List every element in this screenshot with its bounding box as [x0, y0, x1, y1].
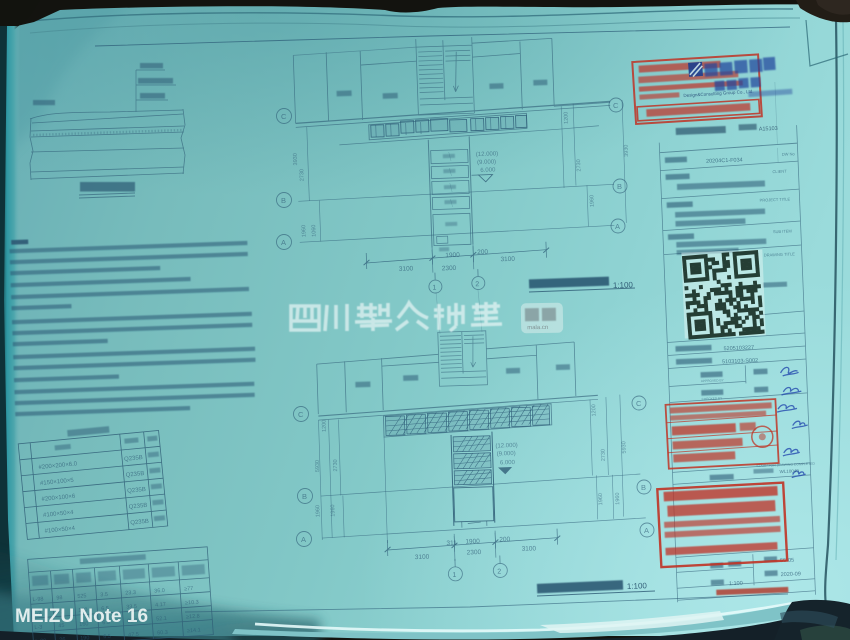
svg-text:B: B [302, 492, 307, 501]
svg-text:36.0: 36.0 [154, 588, 165, 595]
svg-text:C: C [281, 112, 287, 121]
svg-text:60.3: 60.3 [157, 630, 168, 637]
svg-text:(12.000): (12.000) [476, 151, 499, 158]
svg-text:5930: 5930 [621, 441, 627, 453]
svg-text:L-98: L-98 [32, 596, 43, 603]
svg-text:A: A [644, 526, 649, 535]
svg-text:(12.000): (12.000) [495, 443, 518, 450]
svg-text:1960: 1960 [615, 492, 621, 504]
svg-text:DW No: DW No [782, 151, 796, 157]
svg-text:1900: 1900 [465, 538, 480, 545]
svg-text:3100: 3100 [399, 265, 414, 273]
svg-text:1:100: 1:100 [627, 581, 648, 591]
svg-text:200: 200 [499, 536, 510, 543]
svg-text:2300: 2300 [442, 265, 457, 273]
svg-text:2: 2 [497, 568, 501, 575]
svg-text:3930: 3930 [293, 153, 299, 165]
svg-text:525: 525 [77, 593, 87, 600]
svg-text:SUB ITEM: SUB ITEM [773, 228, 792, 234]
svg-text:WL10049: WL10049 [779, 468, 799, 474]
svg-text:1960: 1960 [598, 493, 604, 505]
svg-text:1960: 1960 [315, 505, 321, 517]
svg-text:4.17: 4.17 [155, 602, 166, 609]
svg-text:52.1: 52.1 [156, 616, 167, 623]
svg-text:200: 200 [477, 249, 488, 256]
svg-text:2730: 2730 [299, 169, 305, 181]
svg-text:1900: 1900 [445, 252, 460, 260]
svg-text:A: A [281, 238, 286, 247]
svg-text:≥10.3: ≥10.3 [185, 600, 199, 607]
svg-text:98: 98 [56, 595, 63, 601]
svg-text:3100: 3100 [500, 256, 515, 264]
svg-text:1960: 1960 [301, 225, 307, 237]
svg-text:3.5: 3.5 [100, 592, 108, 599]
svg-text:A: A [301, 535, 306, 544]
svg-text:≥12.8: ≥12.8 [186, 614, 200, 621]
svg-text:(9.000): (9.000) [497, 451, 516, 458]
svg-text:B: B [281, 196, 286, 205]
svg-text:2730: 2730 [333, 459, 339, 471]
svg-text:5205103227: 5205103227 [723, 345, 754, 352]
svg-text:B: B [641, 483, 646, 492]
svg-text:47.5: 47.5 [128, 632, 139, 639]
svg-text:C: C [613, 101, 619, 110]
svg-text:311: 311 [446, 540, 457, 547]
svg-text:(9.000): (9.000) [477, 159, 496, 166]
svg-text:2730: 2730 [601, 449, 607, 461]
svg-text:23.3: 23.3 [125, 590, 136, 597]
svg-text:MEIZU Note 16: MEIZU Note 16 [15, 606, 148, 627]
svg-text:1:100: 1:100 [729, 581, 743, 588]
svg-text:≥77: ≥77 [184, 586, 194, 593]
svg-text:A: A [615, 222, 620, 231]
svg-text:6.000: 6.000 [500, 460, 516, 466]
svg-text:1960: 1960 [589, 195, 595, 207]
svg-text:6.5: 6.5 [103, 634, 111, 640]
svg-text:2: 2 [475, 281, 479, 288]
svg-text:1200: 1200 [563, 112, 569, 124]
svg-text:CLIENT: CLIENT [772, 169, 787, 175]
svg-text:1200: 1200 [321, 420, 327, 432]
svg-text:C: C [298, 410, 304, 419]
svg-text:B: B [617, 182, 622, 191]
svg-text:2730: 2730 [576, 159, 582, 171]
svg-text:6.000: 6.000 [480, 167, 496, 174]
svg-text:1060: 1060 [311, 224, 317, 236]
svg-text:≥14.1: ≥14.1 [187, 627, 201, 634]
svg-text:mala.cn: mala.cn [527, 325, 548, 331]
svg-text:3930: 3930 [624, 144, 630, 156]
svg-text:C: C [636, 399, 642, 408]
svg-text:3100: 3100 [415, 554, 430, 561]
svg-text:2020-09: 2020-09 [781, 571, 801, 578]
svg-text:1: 1 [432, 285, 436, 292]
svg-text:1200: 1200 [591, 404, 597, 416]
svg-text:2300: 2300 [467, 549, 482, 556]
svg-text:A15103: A15103 [759, 126, 778, 133]
svg-text:1: 1 [452, 572, 456, 579]
svg-text:190: 190 [80, 635, 90, 640]
svg-text:3100: 3100 [522, 545, 537, 552]
